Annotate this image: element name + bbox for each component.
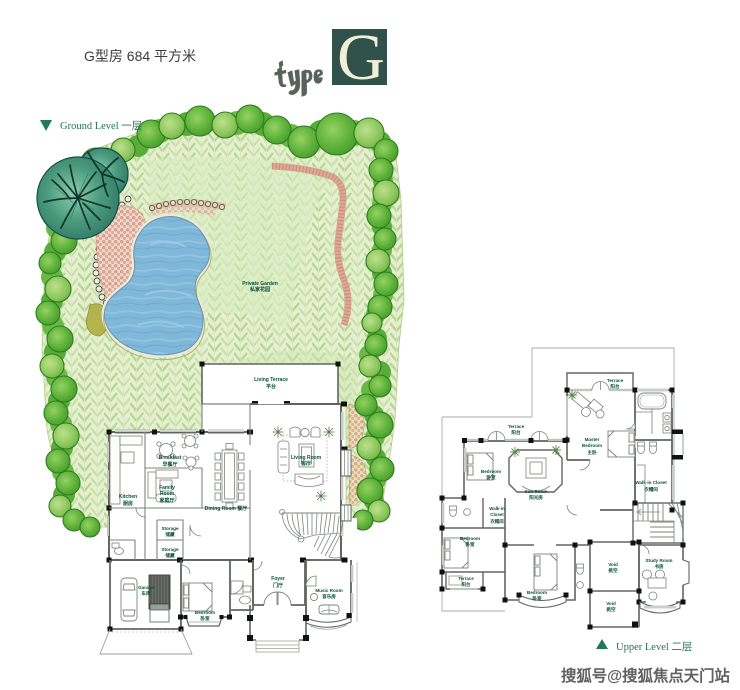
svg-text:Music Room: Music Room <box>315 588 342 593</box>
svg-text:音乐房: 音乐房 <box>322 593 336 600</box>
svg-text:Bedroom: Bedroom <box>527 590 547 595</box>
svg-text:挑空: 挑空 <box>606 606 616 613</box>
svg-text:平台: 平台 <box>266 383 276 390</box>
svg-text:搜狐号@搜狐焦点天门站: 搜狐号@搜狐焦点天门站 <box>561 666 731 685</box>
svg-text:Storage: Storage <box>161 526 179 531</box>
svg-text:Upper Level 二层: Upper Level 二层 <box>616 641 692 653</box>
svg-text:Dining Room 餐厅: Dining Room 餐厅 <box>205 505 248 512</box>
svg-text:储藏: 储藏 <box>165 552 175 559</box>
svg-text:衣帽间: 衣帽间 <box>644 486 658 493</box>
svg-text:卧室: 卧室 <box>486 474 496 481</box>
svg-text:主卧: 主卧 <box>587 449 597 456</box>
svg-text:车库: 车库 <box>141 590 151 597</box>
svg-text:Void: Void <box>608 562 618 567</box>
svg-text:Foyer: Foyer <box>271 576 285 582</box>
svg-text:Ground Level 一层: Ground Level 一层 <box>60 120 142 132</box>
svg-text:衣帽间: 衣帽间 <box>490 518 504 525</box>
svg-text:Breakfast: Breakfast <box>159 455 182 461</box>
svg-text:家庭厅: 家庭厅 <box>159 497 174 504</box>
svg-text:阳台: 阳台 <box>610 383 620 390</box>
svg-text:Walk-in Closet: Walk-in Closet <box>635 480 667 485</box>
svg-text:Bedroom: Bedroom <box>195 610 215 615</box>
svg-text:Terrace: Terrace <box>508 424 525 429</box>
svg-text:卧室: 卧室 <box>200 615 210 622</box>
svg-text:Kitchen: Kitchen <box>119 494 137 500</box>
svg-text:卧室: 卧室 <box>465 541 475 548</box>
svg-text:Terrace: Terrace <box>458 576 474 581</box>
svg-text:Storage: Storage <box>161 547 179 552</box>
svg-text:阳台: 阳台 <box>511 429 521 436</box>
svg-text:Master: Master <box>585 437 600 442</box>
svg-text:Terrace: Terrace <box>607 378 624 383</box>
svg-text:厨房: 厨房 <box>123 500 133 507</box>
svg-text:Bedroom: Bedroom <box>481 469 501 474</box>
svg-text:早餐厅: 早餐厅 <box>162 461 177 468</box>
svg-text:Study Room: Study Room <box>645 558 672 563</box>
svg-text:储藏: 储藏 <box>165 531 175 538</box>
svg-text:Walk-in: Walk-in <box>489 506 505 511</box>
svg-text:Closet: Closet <box>490 512 504 517</box>
svg-text:客厅: 客厅 <box>300 460 311 467</box>
svg-text:书房: 书房 <box>654 563 664 570</box>
svg-text:G型房 684 平方米: G型房 684 平方米 <box>84 48 196 64</box>
svg-text:阳光房: 阳光房 <box>529 494 543 501</box>
svg-text:Bedroom: Bedroom <box>460 536 480 541</box>
svg-text:挑空: 挑空 <box>608 567 618 574</box>
svg-text:Garage: Garage <box>138 585 154 590</box>
svg-text:Void: Void <box>606 601 616 606</box>
svg-text:Bedroom: Bedroom <box>582 443 602 448</box>
svg-text:私家花园: 私家花园 <box>249 286 270 293</box>
svg-text:门厅: 门厅 <box>273 582 283 589</box>
svg-text:阳台: 阳台 <box>462 581 471 588</box>
svg-text:Room: Room <box>160 491 175 497</box>
svg-text:Sun Room: Sun Room <box>525 489 548 494</box>
svg-text:G: G <box>337 21 385 94</box>
svg-text:卧室: 卧室 <box>532 595 542 602</box>
svg-text:Living Terrace: Living Terrace <box>254 377 288 383</box>
